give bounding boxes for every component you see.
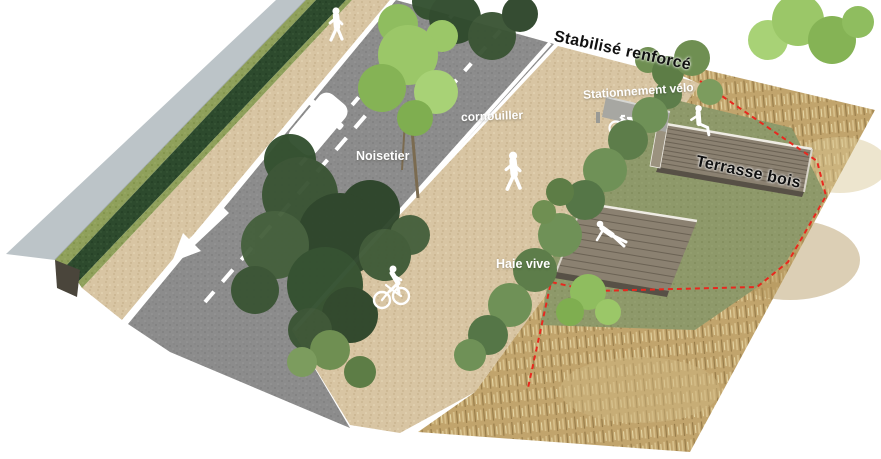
landscape-plan-illustration: Stabilisé renforcé Stationnement vélo co…	[0, 0, 881, 459]
bollard	[596, 112, 600, 123]
ground-planes	[6, 0, 881, 452]
bright-trees-top-right	[748, 0, 874, 64]
meadow-light-patch	[560, 357, 720, 423]
plan-drawing	[0, 0, 881, 459]
